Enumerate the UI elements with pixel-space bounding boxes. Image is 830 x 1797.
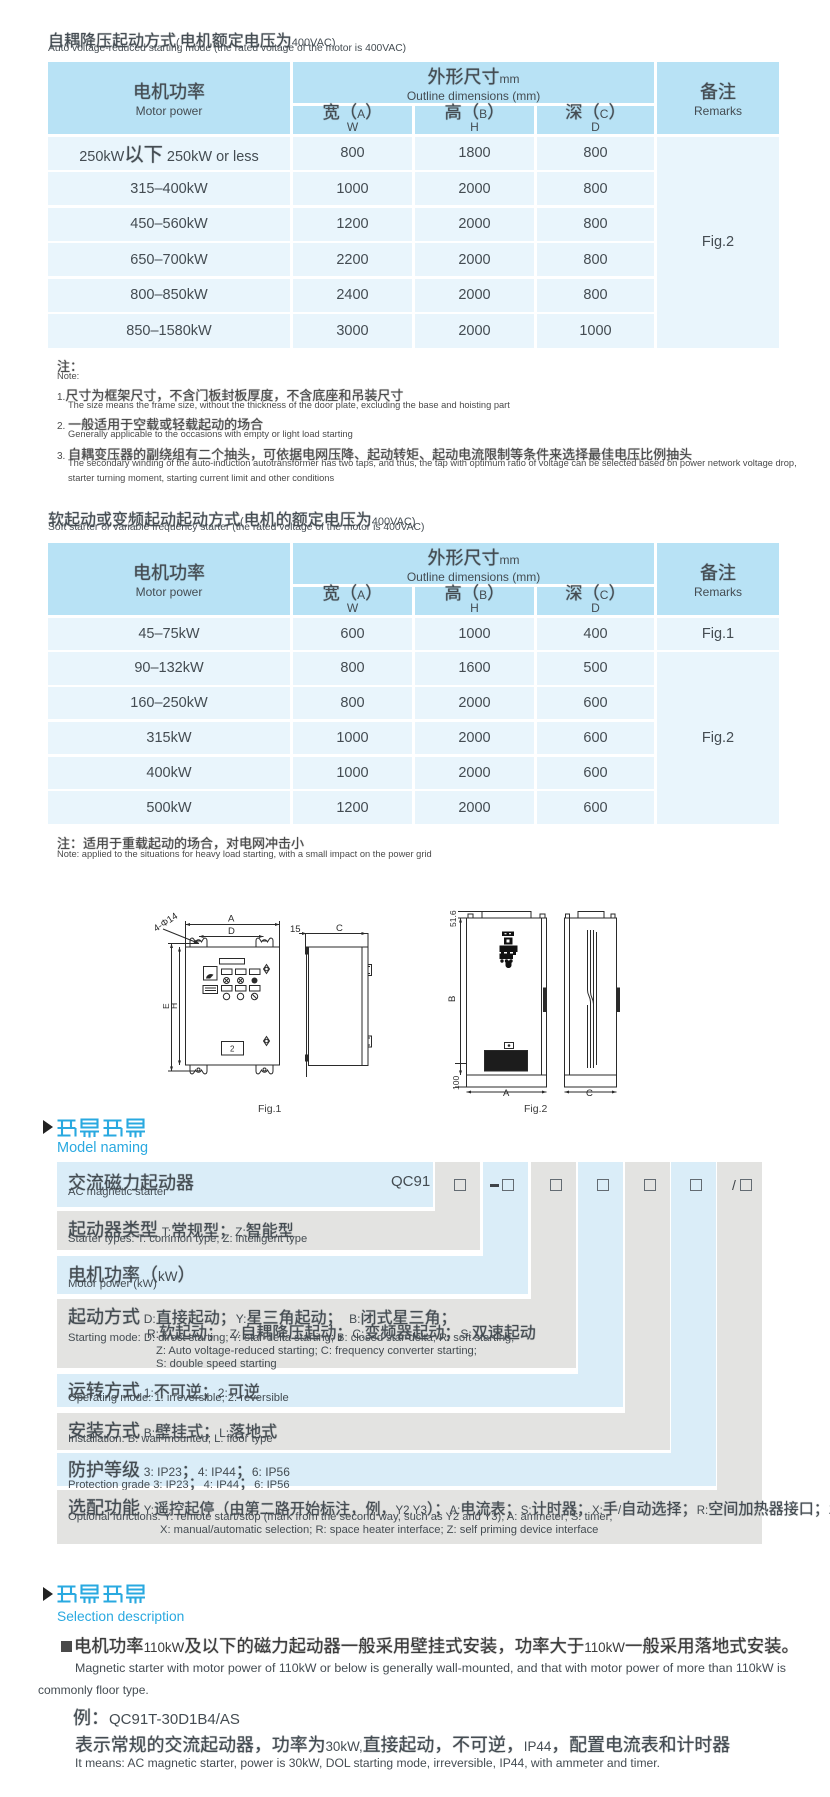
svg-text:H: H xyxy=(169,1003,179,1009)
svg-text:15: 15 xyxy=(290,924,301,935)
svg-text:2: 2 xyxy=(230,1045,235,1054)
svg-text:A: A xyxy=(503,1088,510,1099)
svg-text:Fig.1: Fig.1 xyxy=(258,1103,282,1115)
svg-text:C: C xyxy=(586,1088,593,1099)
svg-text:A: A xyxy=(228,914,235,925)
svg-text:51.6: 51.6 xyxy=(448,910,458,927)
svg-text:4-Φ14: 4-Φ14 xyxy=(152,911,180,935)
svg-text:C: C xyxy=(336,923,343,934)
svg-text:Fig.2: Fig.2 xyxy=(524,1103,548,1115)
svg-text:D: D xyxy=(228,926,235,937)
svg-text:B: B xyxy=(447,996,458,1002)
svg-text:100: 100 xyxy=(451,1076,461,1090)
